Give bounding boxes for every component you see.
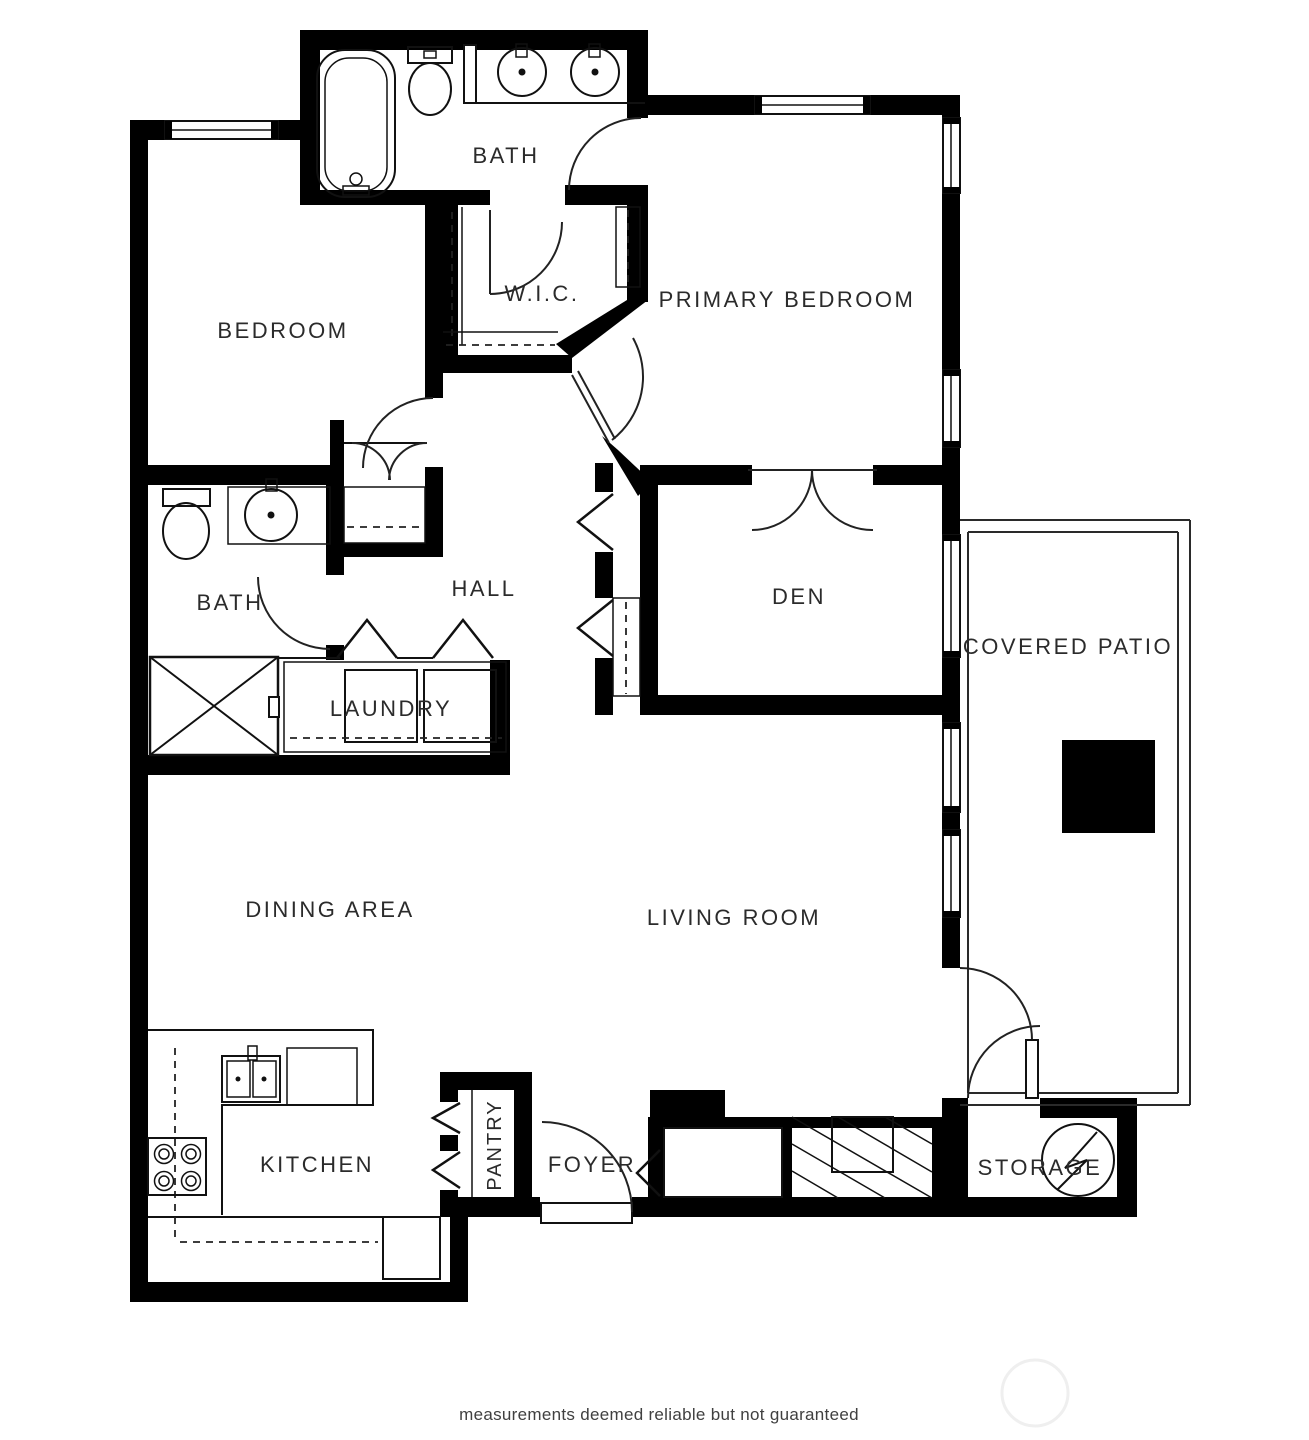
chevron-den-bottom <box>578 600 613 656</box>
door-arc-bath-top <box>569 118 641 190</box>
linen-closet <box>344 443 425 543</box>
door-leaf-entry <box>541 1203 632 1223</box>
vanity-bath-top <box>476 44 645 103</box>
watermark-circle <box>1002 1360 1068 1426</box>
room-label-primary-bedroom: PRIMARY BEDROOM <box>659 287 916 312</box>
room-label-den: DEN <box>772 584 826 609</box>
patio-outline <box>960 520 1190 1105</box>
kitchen-sink <box>222 1046 280 1102</box>
fridge <box>383 1217 440 1279</box>
room-label-pantry: PANTRY <box>484 1099 506 1190</box>
room-label-wic: W.I.C. <box>505 281 580 306</box>
room-label-bath-hall: BATH <box>196 590 263 615</box>
door-arc-primary <box>572 338 643 443</box>
vanity-bath-hall <box>228 479 330 544</box>
windows <box>165 96 960 917</box>
toilet-bath-hall <box>163 489 210 559</box>
room-label-hall: HALL <box>451 576 516 601</box>
window-den <box>943 535 960 657</box>
hatch-area <box>792 1117 932 1198</box>
door-leaf-patio <box>1026 1040 1038 1098</box>
window-living-1 <box>943 723 960 812</box>
shower <box>150 657 279 755</box>
room-label-bath-top: BATH <box>472 143 539 168</box>
room-label-covered-patio: COVERED PATIO <box>963 634 1173 659</box>
den-closet <box>613 598 640 696</box>
den-double-doors <box>748 470 877 530</box>
bathtub <box>317 50 395 197</box>
window-primary-right-1 <box>943 118 960 193</box>
toilet-bath-top <box>408 47 452 115</box>
room-label-storage: STORAGE <box>978 1155 1103 1180</box>
disclaimer-text: measurements deemed reliable but not gua… <box>459 1405 859 1424</box>
stove <box>148 1138 206 1195</box>
room-label-kitchen: KITCHEN <box>260 1152 374 1177</box>
floor-plan-svg: BATH BEDROOM W.I.C. PRIMARY BEDROOM BATH… <box>0 0 1309 1440</box>
window-living-2 <box>943 830 960 917</box>
window-primary-top <box>755 96 870 114</box>
floor-plan-page: BATH BEDROOM W.I.C. PRIMARY BEDROOM BATH… <box>0 0 1309 1440</box>
door-arc-bath-hall <box>258 577 330 649</box>
window-bedroom <box>165 121 278 139</box>
room-label-foyer: FOYER <box>548 1152 636 1177</box>
dishwasher <box>287 1048 357 1105</box>
room-label-bedroom: BEDROOM <box>217 318 348 343</box>
entry-closet <box>664 1128 782 1197</box>
bath-top-partition <box>464 45 476 103</box>
chevron-den-top <box>578 494 613 550</box>
chevron-pantry-bottom <box>433 1152 460 1188</box>
walls <box>130 30 1137 1302</box>
patio-column <box>1062 740 1155 833</box>
window-primary-right-2 <box>943 370 960 447</box>
room-label-living-room: LIVING ROOM <box>647 905 821 930</box>
chevron-laundry-right <box>433 620 493 658</box>
room-labels: BATH BEDROOM W.I.C. PRIMARY BEDROOM BATH… <box>196 143 1173 1191</box>
chevron-pantry-top <box>433 1103 460 1133</box>
room-label-dining-area: DINING AREA <box>245 897 414 922</box>
chevron-laundry-left <box>337 620 397 658</box>
room-label-laundry: LAUNDRY <box>330 696 452 721</box>
